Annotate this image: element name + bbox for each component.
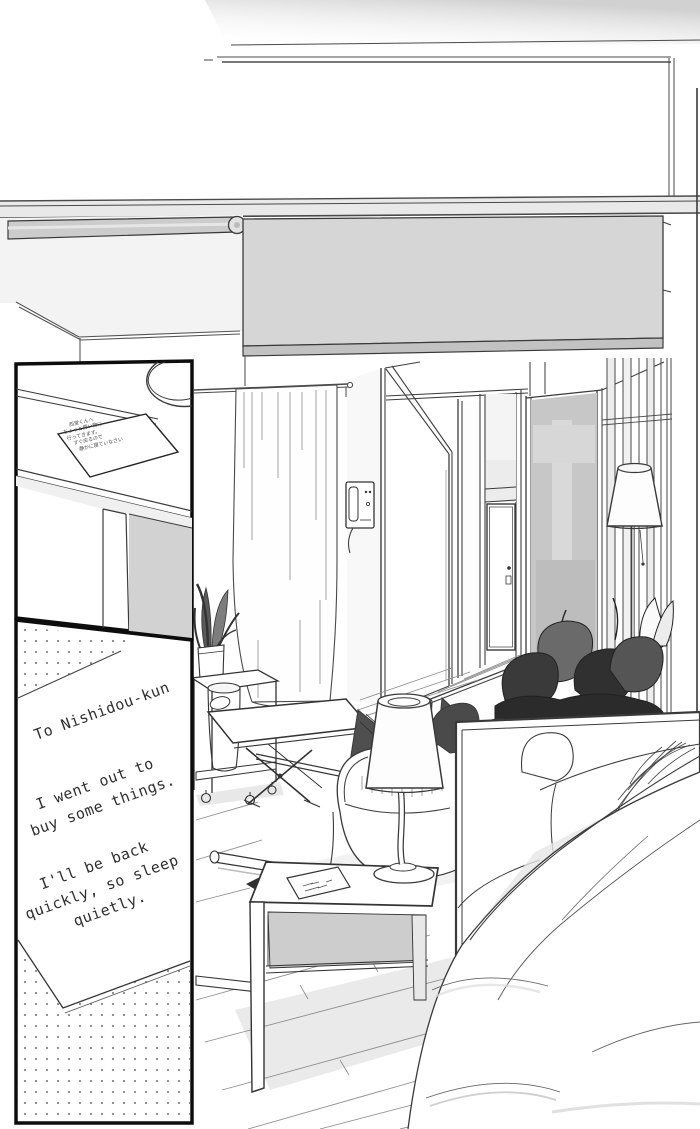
ceiling-left-corner: [0, 215, 245, 386]
scene-artwork: [0, 0, 700, 1129]
potted-plant-small: [195, 584, 239, 679]
baseboard-bar: [196, 976, 258, 992]
ceiling-beams: [0, 40, 700, 218]
ceiling-tone-topright: [205, 0, 700, 46]
roller-blind: [243, 216, 671, 356]
front-door: [485, 394, 516, 650]
manga-page: 西堂くんへ ちょっと買い物に 行ってきます。 すぐ戻るので 静かに寝ていなさい …: [0, 0, 700, 1129]
